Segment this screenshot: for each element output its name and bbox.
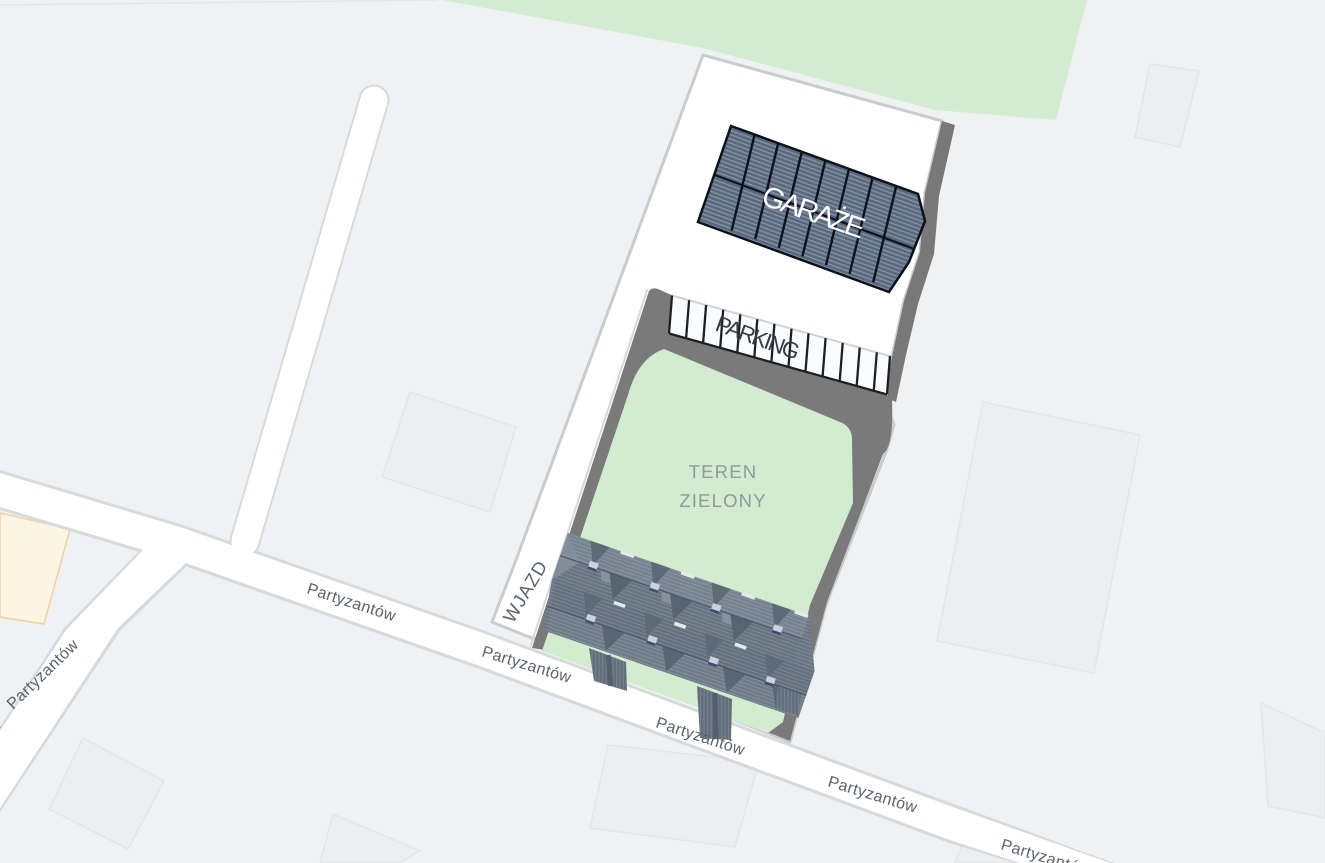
svg-text:ZIELONY: ZIELONY bbox=[679, 490, 767, 511]
svg-text:TEREN: TEREN bbox=[689, 461, 758, 482]
